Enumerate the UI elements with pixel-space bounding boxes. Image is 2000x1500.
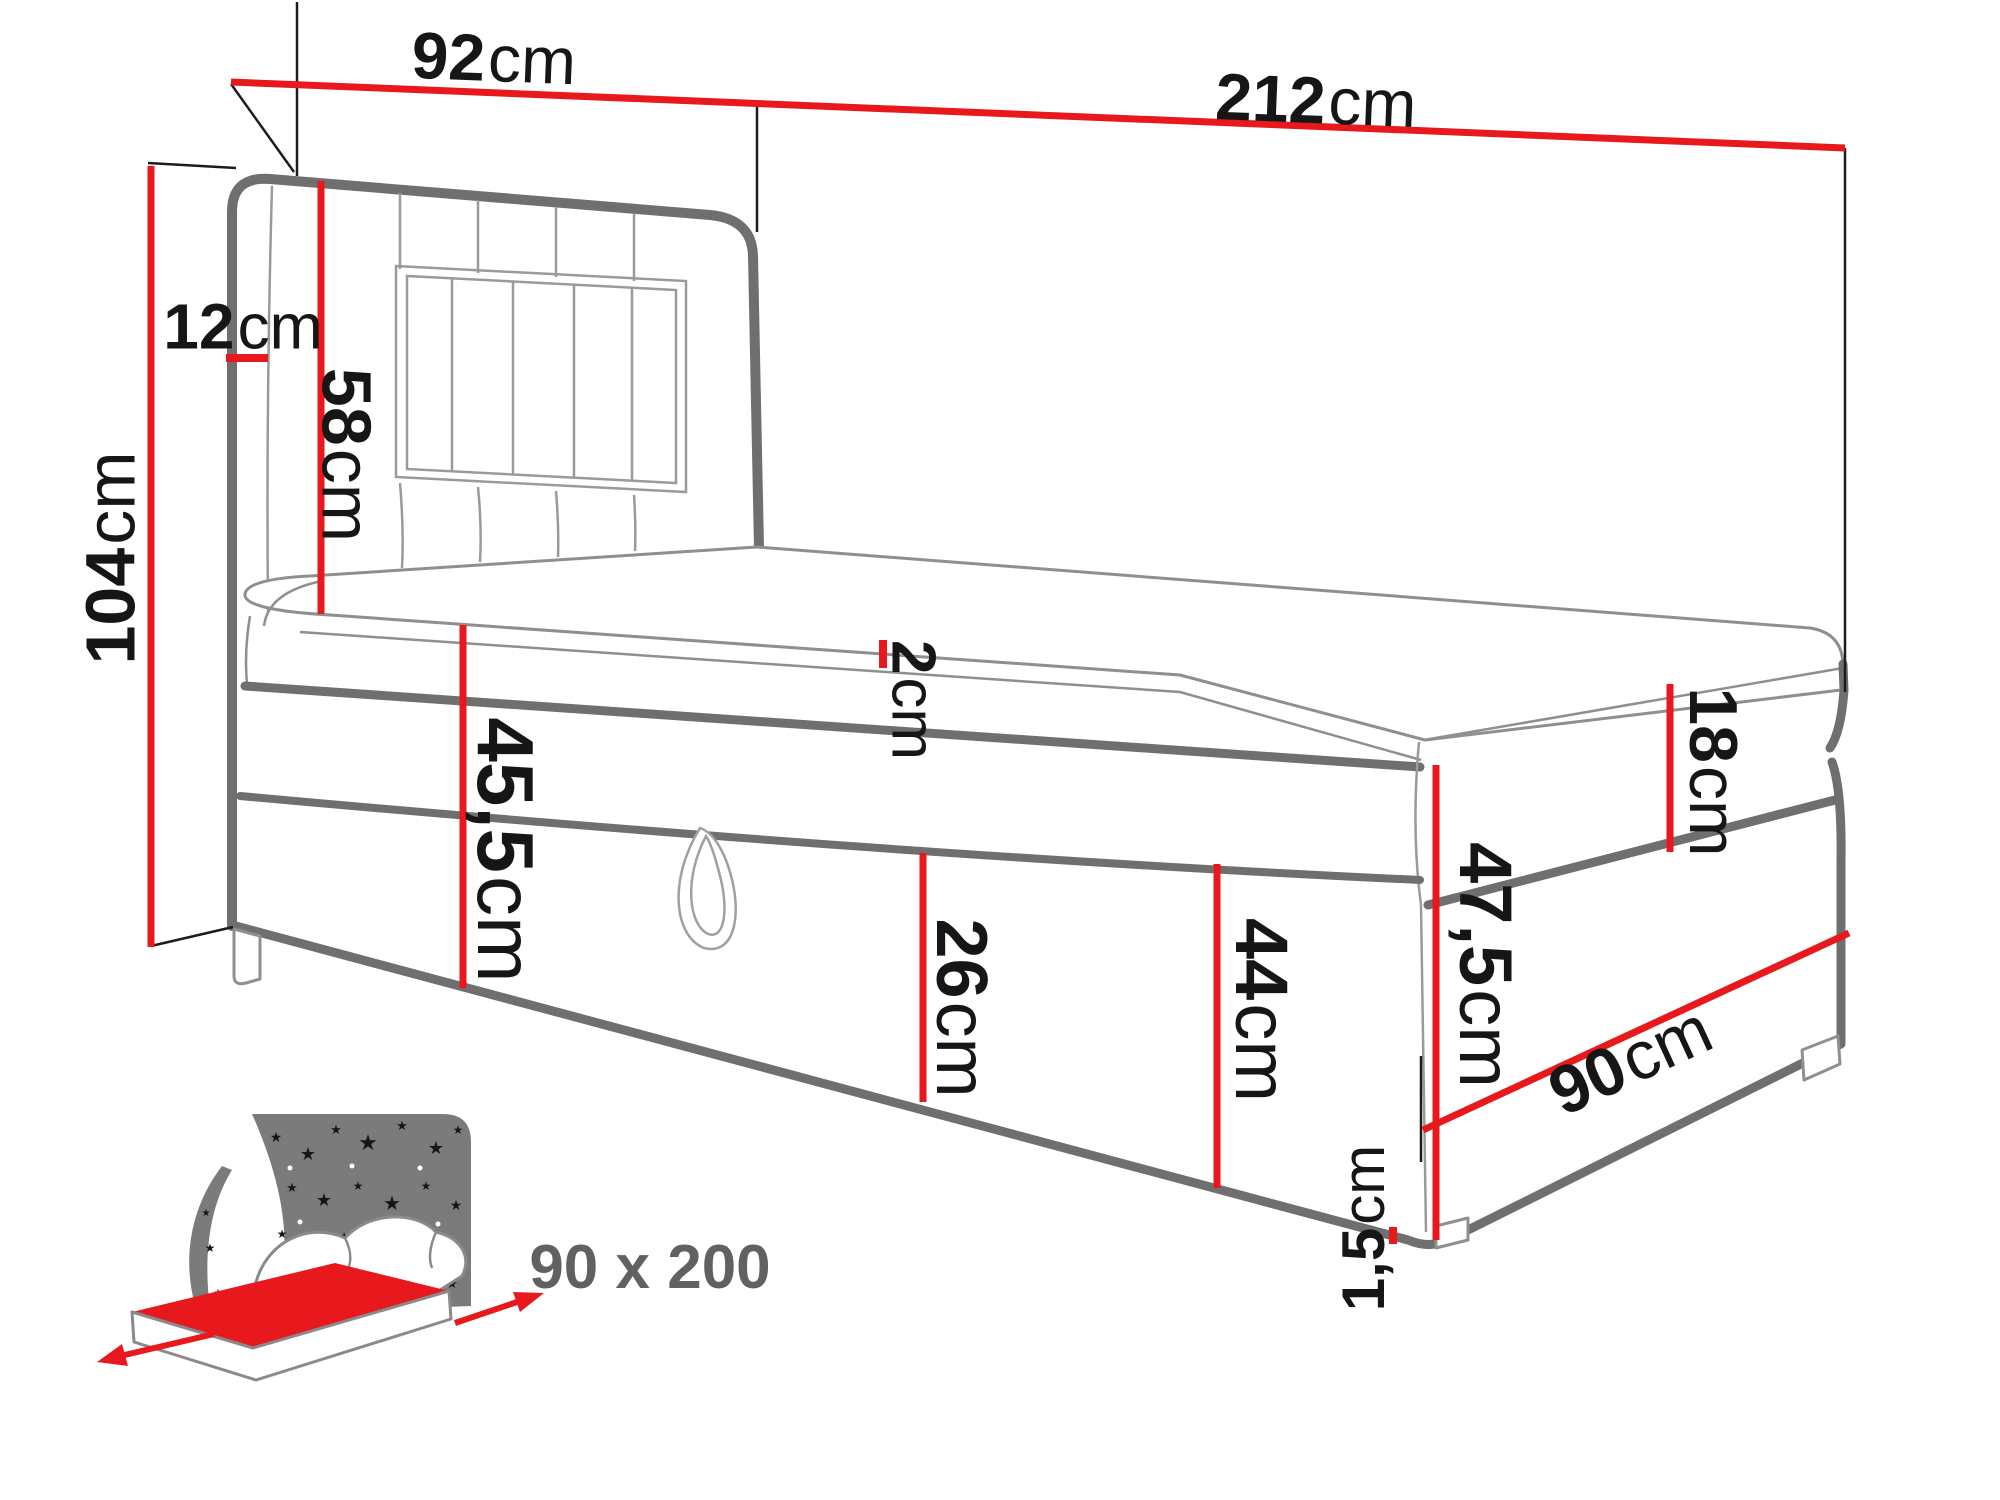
svg-text:★: ★: [277, 1227, 288, 1241]
dim-label-45-5cm: 45,5cm: [461, 717, 550, 982]
svg-text:★: ★: [270, 1129, 283, 1145]
dim-label-90cm: 90cm: [1538, 991, 1724, 1131]
dim-label-44cm: 44cm: [1220, 918, 1303, 1102]
svg-text:★: ★: [316, 1190, 332, 1210]
svg-text:★: ★: [202, 1208, 211, 1219]
svg-text:★: ★: [353, 1179, 364, 1193]
svg-text:★: ★: [428, 1138, 444, 1158]
dim-label-26cm: 26cm: [921, 918, 1001, 1097]
dim-label-18cm: 18cm: [1675, 687, 1751, 856]
svg-text:★: ★: [453, 1123, 464, 1137]
dim-label-212cm: 212cm: [1214, 59, 1418, 141]
svg-text:★: ★: [358, 1130, 378, 1155]
dim-label-58cm: 58cm: [308, 368, 386, 542]
svg-text:★: ★: [450, 1197, 463, 1213]
dim-label-92cm: 92cm: [410, 18, 577, 99]
bed-size-icon: ★★ ★★ ★★ ★★ ★★ ★★ ★★ ★★ ★★ ★★ ★★ ★★ ★★: [97, 1114, 771, 1380]
svg-text:★: ★: [286, 1180, 298, 1195]
svg-text:★: ★: [396, 1118, 408, 1133]
handle-icon: [679, 828, 736, 949]
svg-text:★: ★: [421, 1179, 432, 1193]
dim-label-47-5cm: 47,5cm: [1444, 842, 1527, 1088]
dim-label-104cm: 104cm: [72, 451, 150, 664]
svg-text:★: ★: [300, 1144, 316, 1164]
dim-label-1-5cm: 1,5cm: [1330, 1145, 1397, 1311]
diagram-canvas: 92cm 212cm 104cm 12cm 58cm 2cm 45,5cm 26…: [0, 0, 2000, 1500]
svg-text:★: ★: [205, 1241, 216, 1255]
dim-label-2cm: 2cm: [878, 640, 947, 760]
svg-text:★: ★: [383, 1193, 401, 1215]
dim-label-12cm: 12cm: [163, 290, 323, 362]
svg-text:★: ★: [330, 1122, 342, 1137]
storage-seam: [240, 796, 1420, 880]
bed-dimension-diagram: 92cm 212cm 104cm 12cm 58cm 2cm 45,5cm 26…: [0, 0, 2000, 1500]
size-badge: 90 x 200: [529, 1233, 770, 1302]
